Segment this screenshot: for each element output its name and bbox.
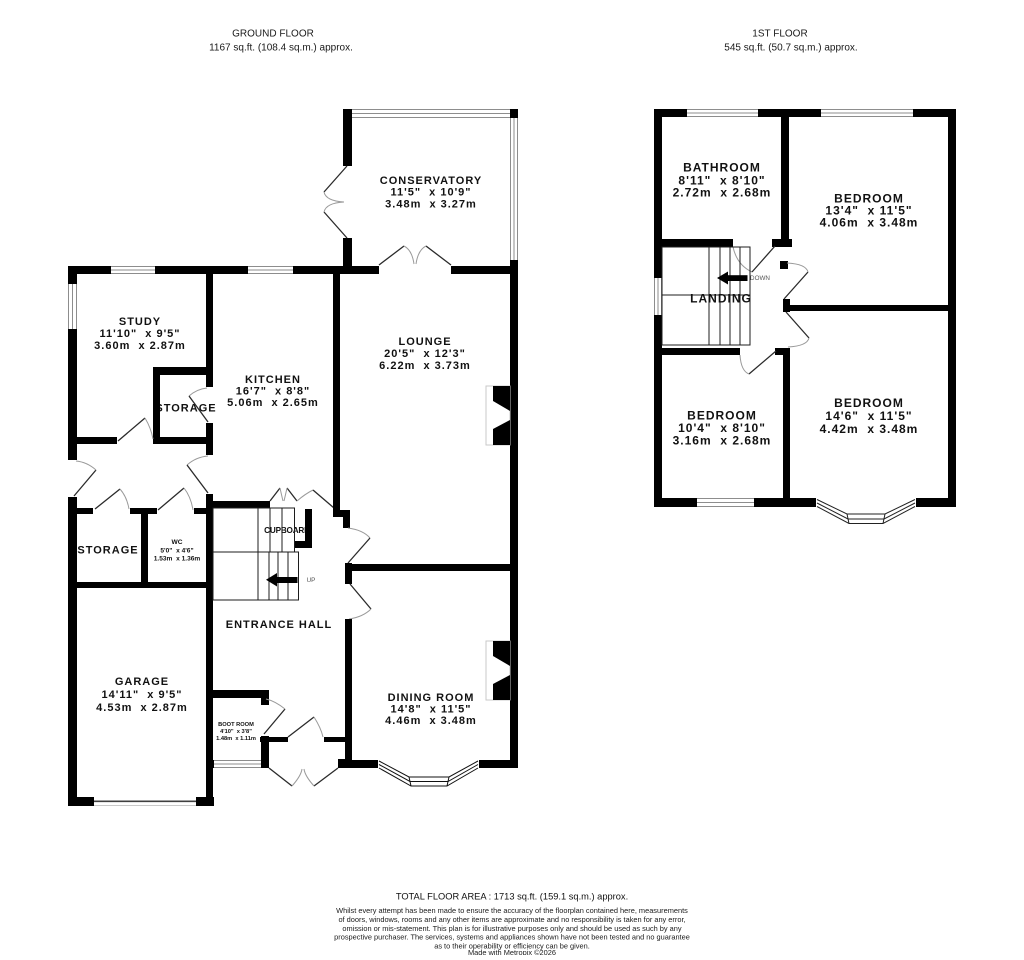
svg-text:WC: WC <box>172 539 183 546</box>
svg-text:4.46m x 3.48m: 4.46m x 3.48m <box>385 715 477 727</box>
svg-text:4.53m x 2.87m: 4.53m x 2.87m <box>96 702 188 714</box>
svg-text:4'10" x 3'8": 4'10" x 3'8" <box>220 729 252 735</box>
svg-text:14'6" x 11'5": 14'6" x 11'5" <box>825 409 912 423</box>
svg-text:5'0" x 4'6": 5'0" x 4'6" <box>160 547 193 554</box>
svg-text:11'10" x 9'5": 11'10" x 9'5" <box>99 328 180 340</box>
svg-text:GROUND FLOOR: GROUND FLOOR <box>232 29 314 40</box>
svg-text:LOUNGE: LOUNGE <box>398 336 451 348</box>
svg-text:4.06m x 3.48m: 4.06m x 3.48m <box>820 215 919 229</box>
svg-text:1.48m x 1.11m: 1.48m x 1.11m <box>216 736 256 742</box>
svg-text:UP: UP <box>307 577 316 584</box>
svg-text:16'7" x 8'8": 16'7" x 8'8" <box>236 386 311 398</box>
svg-text:11'5" x 10'9": 11'5" x 10'9" <box>390 187 471 199</box>
svg-text:1.53m x 1.36m: 1.53m x 1.36m <box>154 555 201 562</box>
svg-text:GARAGE: GARAGE <box>115 676 169 688</box>
svg-text:6.22m x 3.73m: 6.22m x 3.73m <box>379 360 471 372</box>
svg-text:14'8" x 11'5": 14'8" x 11'5" <box>390 704 471 716</box>
svg-text:3.48m x 3.27m: 3.48m x 3.27m <box>385 199 477 211</box>
svg-text:omission or mis-statement. Thi: omission or mis-statement. This plan is … <box>342 924 681 933</box>
svg-text:1167 sq.ft. (108.4 sq.m.) appr: 1167 sq.ft. (108.4 sq.m.) approx. <box>209 43 353 54</box>
svg-text:DOWN: DOWN <box>750 275 770 282</box>
svg-text:Whilst every attempt has been: Whilst every attempt has been made to en… <box>336 906 688 915</box>
svg-text:545 sq.ft. (50.7 sq.m.) approx: 545 sq.ft. (50.7 sq.m.) approx. <box>724 43 857 54</box>
svg-text:TOTAL FLOOR AREA : 1713 sq.ft.: TOTAL FLOOR AREA : 1713 sq.ft. (159.1 sq… <box>396 892 628 902</box>
svg-text:5.06m x 2.65m: 5.06m x 2.65m <box>227 397 319 409</box>
svg-text:20'5" x 12'3": 20'5" x 12'3" <box>384 348 466 360</box>
svg-text:ENTRANCE HALL: ENTRANCE HALL <box>226 619 333 631</box>
svg-text:BEDROOM: BEDROOM <box>834 396 904 410</box>
svg-text:2.72m x 2.68m: 2.72m x 2.68m <box>673 185 772 199</box>
svg-text:BOOT ROOM: BOOT ROOM <box>218 722 254 728</box>
svg-text:Made with Metropix ©2026: Made with Metropix ©2026 <box>468 948 556 955</box>
svg-text:3.60m x 2.87m: 3.60m x 2.87m <box>94 340 186 352</box>
svg-text:of doors, windows, rooms and a: of doors, windows, rooms and any other i… <box>338 915 685 924</box>
svg-text:CUPBOARD: CUPBOARD <box>264 526 310 535</box>
svg-text:LANDING: LANDING <box>690 291 752 305</box>
svg-text:DINING ROOM: DINING ROOM <box>388 692 475 704</box>
svg-text:STUDY: STUDY <box>119 316 161 328</box>
svg-text:14'11" x 9'5": 14'11" x 9'5" <box>101 689 182 701</box>
svg-text:CONSERVATORY: CONSERVATORY <box>380 175 482 187</box>
svg-text:4.42m x 3.48m: 4.42m x 3.48m <box>820 422 919 436</box>
svg-text:STORAGE: STORAGE <box>155 403 216 415</box>
svg-text:BATHROOM: BATHROOM <box>683 160 761 174</box>
svg-text:prospective purchaser. The ser: prospective purchaser. The services, sys… <box>334 933 690 942</box>
svg-text:1ST FLOOR: 1ST FLOOR <box>752 29 807 40</box>
svg-text:3.16m x 2.68m: 3.16m x 2.68m <box>673 433 772 447</box>
svg-text:STORAGE: STORAGE <box>77 545 138 557</box>
svg-text:KITCHEN: KITCHEN <box>245 374 301 386</box>
